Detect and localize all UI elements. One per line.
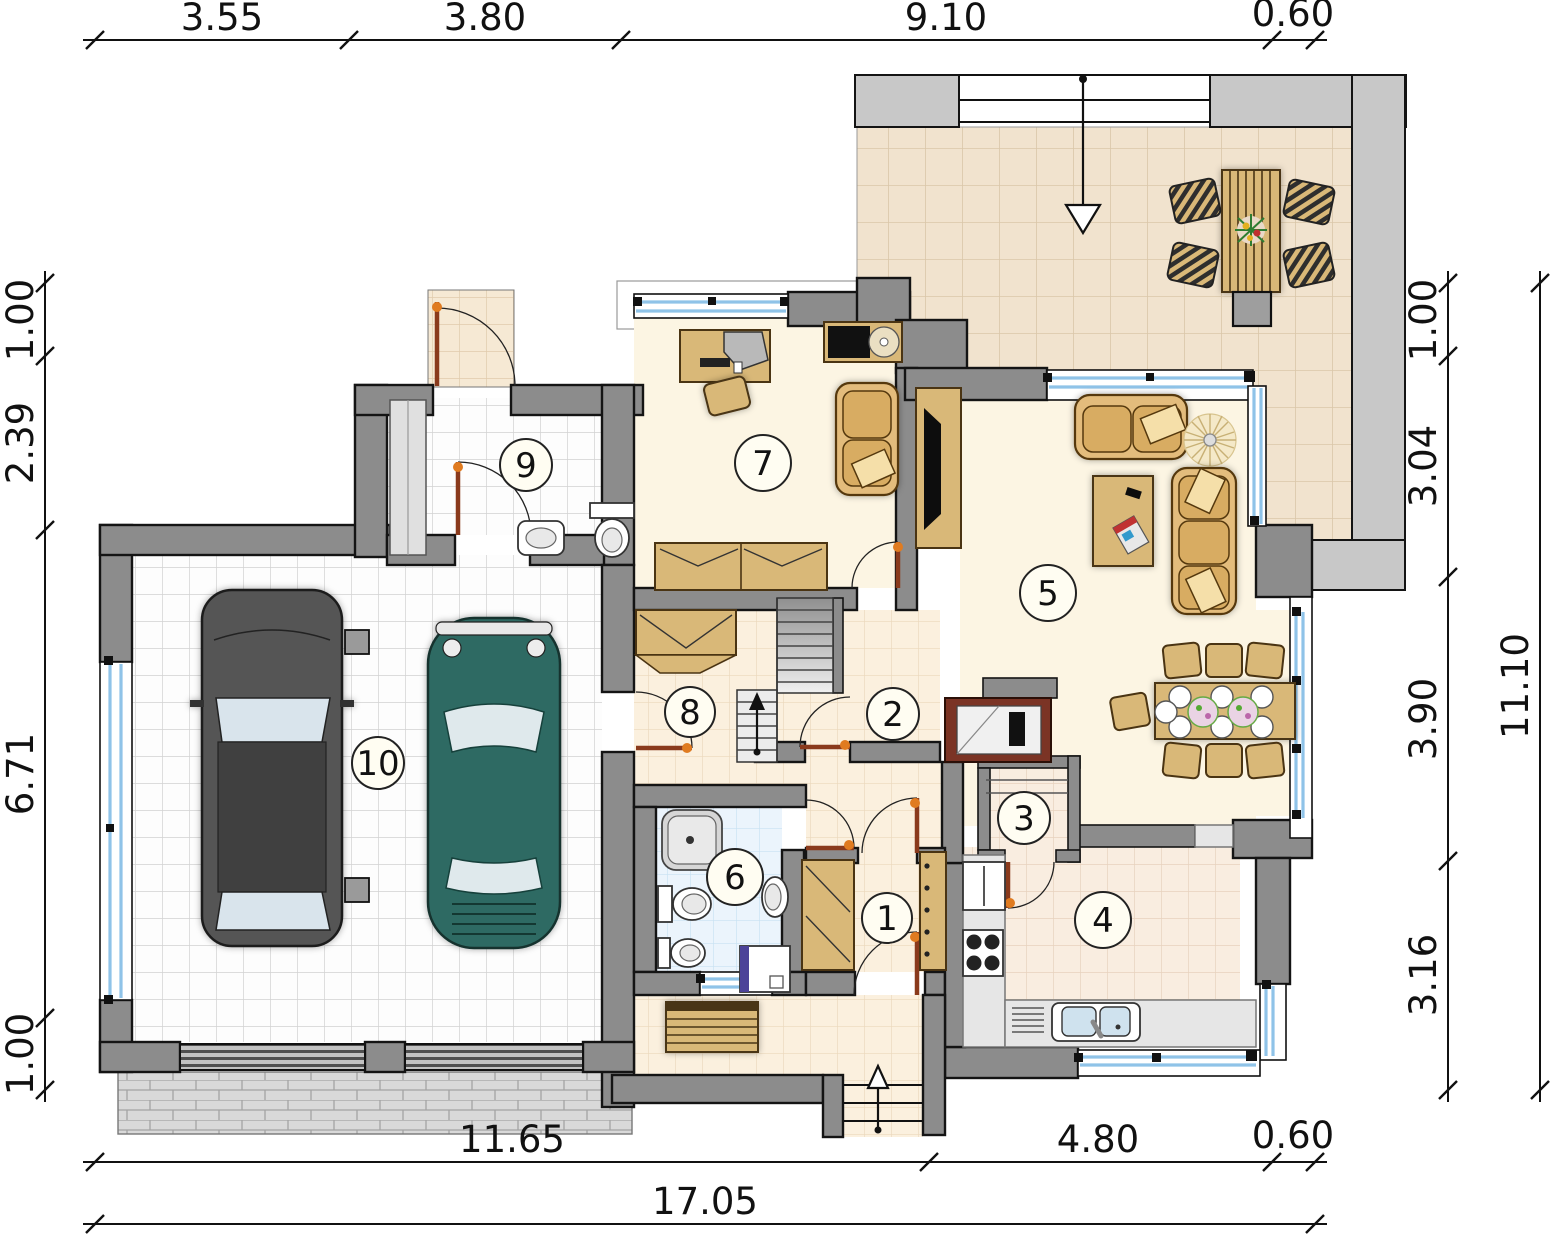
fireplace xyxy=(945,698,1051,762)
floor-plan-drawing: 1 2 3 4 5 6 7 8 9 10 3.55 3.80 9.10 0.60… xyxy=(0,0,1553,1249)
sofa-three-seat xyxy=(1172,468,1236,614)
dim-top-2: 3.80 xyxy=(444,0,526,39)
toilet xyxy=(658,886,711,922)
sofa-two-seat xyxy=(1075,395,1187,459)
room-number-6: 6 xyxy=(724,858,746,898)
garage-door-right xyxy=(405,1044,583,1070)
room-label-2: 2 xyxy=(867,688,919,740)
room-number-8: 8 xyxy=(679,693,701,733)
living-media-wall xyxy=(916,388,961,548)
room-label-7: 7 xyxy=(735,435,791,491)
living-corner-window xyxy=(1248,386,1266,526)
terrace-flowers xyxy=(1235,214,1267,246)
car-coupe xyxy=(428,618,560,948)
kitchen-bottom-window xyxy=(1074,1050,1260,1076)
terrace-planter xyxy=(1233,292,1271,326)
dim-right: 1.00 3.04 3.90 3.16 11.10 xyxy=(1402,271,1549,1102)
floor-plan-page: 1 2 3 4 5 6 7 8 9 10 3.55 3.80 9.10 0.60… xyxy=(0,0,1553,1249)
garage-column xyxy=(345,878,369,902)
room-number-3: 3 xyxy=(1013,799,1035,839)
fireplace-back-wall xyxy=(983,678,1057,698)
bath-sink xyxy=(762,877,788,917)
bench xyxy=(666,1002,758,1052)
parapet-top-left xyxy=(855,75,959,127)
room-number-5: 5 xyxy=(1037,574,1059,614)
car-sedan xyxy=(190,590,354,946)
dim-top-3: 9.10 xyxy=(905,0,987,39)
garage-door-left xyxy=(180,1044,365,1070)
room-label-1: 1 xyxy=(862,893,912,943)
room-number-2: 2 xyxy=(882,695,904,735)
dim-left-4: 1.00 xyxy=(0,1013,42,1095)
room-label-3: 3 xyxy=(998,792,1050,844)
dim-left-3: 6.71 xyxy=(0,733,42,815)
room-label-4: 4 xyxy=(1075,892,1131,948)
dim-right-1: 1.00 xyxy=(1402,279,1445,361)
office-window xyxy=(633,294,789,318)
dim-top-4: 0.60 xyxy=(1252,0,1334,35)
room-label-9: 9 xyxy=(500,439,552,491)
room-number-7: 7 xyxy=(752,444,774,484)
kitchen-pass-counter xyxy=(1195,825,1233,847)
bidet xyxy=(658,938,705,968)
room-number-4: 4 xyxy=(1092,901,1114,941)
dim-top: 3.55 3.80 9.10 0.60 xyxy=(83,0,1334,49)
floor-lamp xyxy=(1184,414,1236,466)
dim-right-3: 3.90 xyxy=(1402,678,1445,760)
room-label-10: 10 xyxy=(352,737,404,789)
room-label-5: 5 xyxy=(1020,565,1076,621)
dim-bottom-total: 17.05 xyxy=(652,1180,758,1223)
dim-bottom-3: 0.60 xyxy=(1252,1114,1334,1157)
office-sofa xyxy=(836,383,898,495)
dim-right-total: 11.10 xyxy=(1494,633,1537,739)
office-wardrobe xyxy=(655,543,827,590)
parapet-right xyxy=(1352,75,1405,590)
dim-top-1: 3.55 xyxy=(181,0,263,39)
mouse xyxy=(734,362,742,373)
dim-left: 1.00 2.39 6.71 1.00 xyxy=(0,271,54,1102)
vestibule-wardrobe-right xyxy=(920,852,946,970)
tv xyxy=(924,408,941,530)
garage-column xyxy=(345,630,369,654)
dim-left-1: 1.00 xyxy=(0,279,42,361)
dim-bottom-1: 11.65 xyxy=(459,1118,565,1161)
room-number-9: 9 xyxy=(515,446,537,486)
garage-window xyxy=(100,656,132,1004)
room-label-6: 6 xyxy=(707,849,763,905)
dim-left-2: 2.39 xyxy=(0,402,42,484)
washing-machine xyxy=(740,946,790,992)
dim-right-4: 3.16 xyxy=(1402,934,1445,1016)
stereo xyxy=(828,326,870,358)
fridge xyxy=(963,862,1005,910)
room-number-1: 1 xyxy=(876,899,898,939)
utility-sink xyxy=(518,521,564,555)
room-number-10: 10 xyxy=(356,744,399,784)
dim-right-2: 3.04 xyxy=(1402,425,1445,507)
kitchen-right-window xyxy=(1260,980,1286,1060)
dim-bottom-2: 4.80 xyxy=(1057,1118,1139,1161)
room-label-8: 8 xyxy=(665,687,715,737)
vestibule-wardrobe-left xyxy=(802,860,854,970)
stove xyxy=(963,930,1003,976)
coffee-table xyxy=(1093,476,1153,566)
keyboard xyxy=(700,358,730,367)
